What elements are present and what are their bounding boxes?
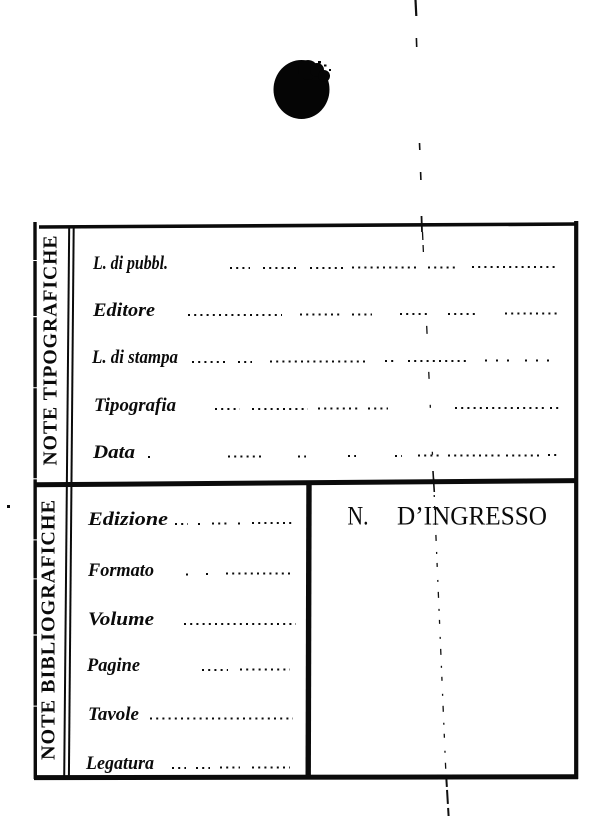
svg-text:Legatura: Legatura — [85, 753, 154, 774]
svg-text:Pagine: Pagine — [86, 655, 141, 676]
svg-text:Formato: Formato — [87, 560, 154, 581]
svg-text:L. di stampa: L. di stampa — [91, 347, 178, 368]
svg-text:N.D’INGRESSO: N.D’INGRESSO — [348, 502, 548, 531]
svg-text:L. di pubbl.: L. di pubbl. — [92, 253, 168, 274]
svg-text:Editore: Editore — [92, 300, 156, 321]
svg-text:Edizione: Edizione — [87, 509, 169, 530]
svg-text:Volume: Volume — [88, 609, 155, 630]
svg-text:Tavole: Tavole — [88, 704, 140, 725]
svg-text:NOTE BIBLIOGRAFICHE: NOTE BIBLIOGRAFICHE — [38, 499, 60, 760]
svg-text:NOTE TIPOGRAFICHE: NOTE TIPOGRAFICHE — [40, 235, 62, 466]
svg-text:Tipografia: Tipografia — [94, 395, 176, 416]
svg-text:Data: Data — [92, 442, 136, 463]
